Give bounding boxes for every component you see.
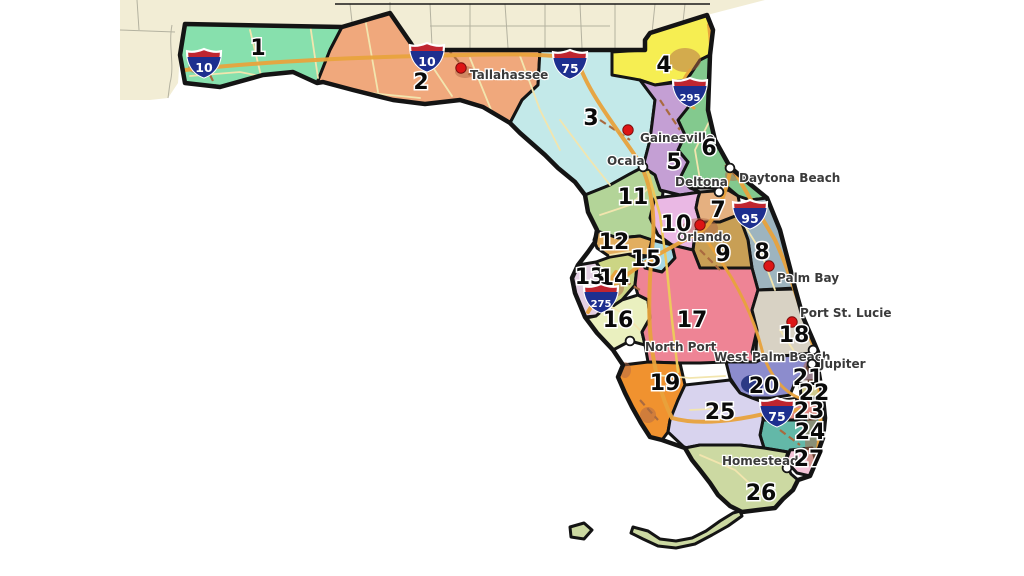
svg-text:295: 295 [680, 93, 701, 104]
city-label: Daytona Beach [739, 171, 840, 185]
district-1-label: 1 [250, 36, 265, 61]
district-24-label: 24 [795, 420, 826, 445]
district-18-label: 18 [779, 323, 810, 348]
city-label: North Port [645, 340, 717, 354]
district-3-label: 3 [583, 106, 598, 131]
district-4-label: 4 [656, 53, 671, 78]
svg-text:10: 10 [195, 60, 213, 75]
district-16-label: 16 [603, 308, 634, 333]
district-12-label: 12 [599, 230, 630, 255]
svg-text:95: 95 [741, 211, 758, 226]
district-20-label: 20 [749, 374, 780, 399]
city-label: Port St. Lucie [800, 306, 892, 320]
svg-text:75: 75 [768, 409, 785, 424]
svg-text:75: 75 [561, 61, 578, 76]
florida-congressional-districts-map: TallahasseeGainesvilleOcalaDeltonaDayton… [0, 0, 1024, 576]
city-label: Deltona [675, 175, 728, 189]
city-label: Ocala [607, 154, 645, 168]
city-label: Homestead [722, 454, 799, 468]
city-dot [626, 337, 635, 346]
city-dot [726, 164, 735, 173]
district-15-label: 15 [631, 247, 662, 272]
district-10-label: 10 [661, 212, 692, 237]
district-5-label: 5 [666, 150, 681, 175]
city-label: Jupiter [819, 357, 866, 371]
district-9-label: 9 [715, 242, 730, 267]
city-dot [695, 220, 705, 230]
district-25-label: 25 [705, 400, 736, 425]
district-26-label: 26 [746, 481, 777, 506]
district-6-label: 6 [701, 136, 716, 161]
svg-text:10: 10 [418, 54, 436, 69]
district-19-label: 19 [650, 371, 681, 396]
district-8-label: 8 [754, 240, 769, 265]
district-7-label: 7 [710, 198, 725, 223]
city-label: Tallahassee [470, 68, 548, 82]
district-17-label: 17 [677, 308, 708, 333]
city-label: Palm Bay [777, 271, 839, 285]
city-dot [456, 63, 466, 73]
city-dot [623, 125, 633, 135]
map-canvas: TallahasseeGainesvilleOcalaDeltonaDayton… [0, 0, 1024, 576]
district-2-label: 2 [413, 70, 428, 95]
svg-text:275: 275 [591, 299, 612, 310]
district-27-label: 27 [794, 447, 825, 472]
district-11-label: 11 [618, 185, 649, 210]
